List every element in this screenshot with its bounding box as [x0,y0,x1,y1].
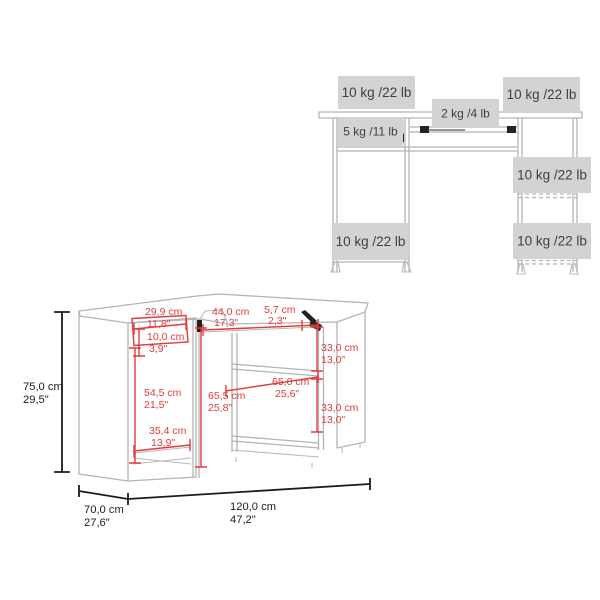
dim-shelf-space-top-cm: 33,0 cm [321,342,359,354]
dim-depth-in: 27,6" [84,517,110,529]
dim-center-height-cm: 65,5 cm [208,390,246,402]
weight-capacity-diagram: 10 kg /22 lb 2 kg /4 lb 10 kg /22 lb 5 k… [312,68,598,286]
dim-center-height-in: 25,8" [208,402,232,414]
weight-label-desktop-left: 10 kg /22 lb [342,85,412,100]
dim-drawer-width-cm: 29,9 cm [145,306,183,318]
dim-height-in: 29,5" [23,394,49,406]
dim-width-in: 47,2" [230,514,256,526]
weight-label-drawer: 5 kg /11 lb [343,125,398,139]
dim-left-cavity-height-in: 21,5" [144,399,168,411]
weight-label-left-pedestal-bottom: 10 kg /22 lb [336,234,406,249]
dim-shelf-space-top-in: 13,0" [321,354,345,366]
dim-drawer-width-in: 11,8" [147,318,171,330]
weight-label-boxes: 10 kg /22 lb 2 kg /4 lb 10 kg /22 lb 5 k… [333,76,591,260]
dim-shelf-space-bottom-in: 13,0" [321,414,345,426]
dim-left-cavity-width-in: 13,9" [151,437,175,449]
dim-left-cavity-height-cm: 54,5 cm [144,387,182,399]
dim-drawer-height-cm: 10,0 cm [147,331,185,343]
weight-label-right-shelf-middle: 10 kg /22 lb [517,168,587,183]
dimension-diagram: 29,9 cm 11,8" 10,0 cm 3,9" 44,0 cm 17,3"… [12,286,380,538]
dim-corner-offset-in: 2,3" [268,315,287,327]
weight-label-keyboard-tray: 2 kg /4 lb [441,107,490,121]
dim-shelf-space-bottom-cm: 33,0 cm [321,402,359,414]
dim-left-cavity-width-cm: 35,4 cm [149,425,187,437]
dim-width-cm: 120,0 cm [230,501,276,513]
dim-drawer-height-in: 3,9" [149,343,168,355]
weight-label-right-shelf-bottom: 10 kg /22 lb [517,234,587,249]
dim-shelf-width-in: 25,6" [275,388,299,400]
dim-height-cm: 75,0 cm [23,381,63,393]
dim-tray-width-in: 17,3" [214,317,238,329]
dim-depth-cm: 70,0 cm [84,504,124,516]
weight-label-desktop-right: 10 kg /22 lb [507,87,577,102]
dim-shelf-width-cm: 65,0 cm [272,376,310,388]
product-spec-sheet: 10 kg /22 lb 2 kg /4 lb 10 kg /22 lb 5 k… [0,0,600,600]
